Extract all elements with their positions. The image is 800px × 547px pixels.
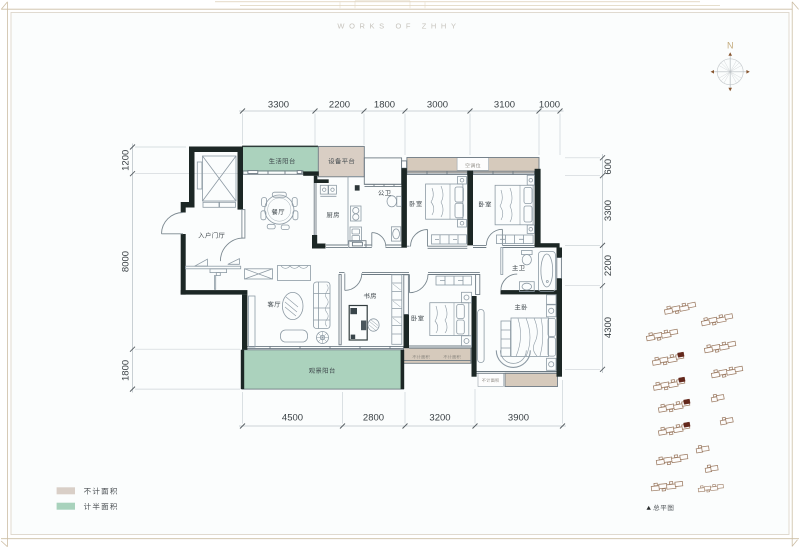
svg-text:8000: 8000 (121, 251, 132, 272)
svg-text:4300: 4300 (603, 317, 614, 338)
svg-text:3200: 3200 (429, 413, 450, 424)
svg-text:4500: 4500 (282, 413, 303, 424)
svg-text:3900: 3900 (508, 413, 529, 424)
svg-text:2200: 2200 (329, 100, 350, 111)
svg-text:1800: 1800 (121, 360, 132, 381)
svg-text:3300: 3300 (268, 100, 289, 111)
svg-text:600: 600 (603, 159, 614, 175)
svg-text:1800: 1800 (374, 100, 395, 111)
svg-text:3000: 3000 (427, 100, 448, 111)
svg-text:WORKS OF ZHHY: WORKS OF ZHHY (337, 22, 460, 31)
svg-text:N: N (727, 41, 734, 51)
svg-text:1200: 1200 (121, 150, 132, 171)
svg-text:3300: 3300 (603, 200, 614, 221)
svg-text:2800: 2800 (363, 413, 384, 424)
svg-text:1000: 1000 (539, 100, 560, 111)
svg-text:3100: 3100 (494, 100, 515, 111)
svg-text:2200: 2200 (603, 255, 614, 276)
